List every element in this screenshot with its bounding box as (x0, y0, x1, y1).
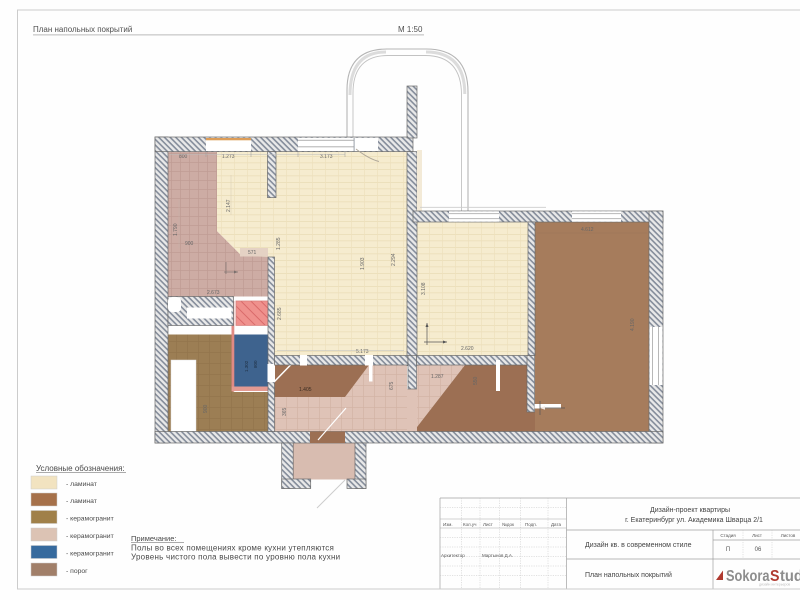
svg-text:дизайн интерьеров: дизайн интерьеров (759, 583, 790, 587)
svg-text:365: 365 (282, 407, 288, 416)
svg-text:Уровень чистого пола вывести п: Уровень чистого пола вывести по уровню п… (131, 553, 340, 562)
svg-text:2.620: 2.620 (461, 346, 474, 352)
svg-text:5.173: 5.173 (356, 349, 369, 355)
svg-text:Изм.: Изм. (443, 522, 453, 527)
svg-text:Дата: Дата (551, 522, 561, 527)
svg-text:675: 675 (389, 381, 395, 390)
svg-text:550: 550 (473, 376, 479, 385)
svg-text:1.287: 1.287 (431, 374, 444, 380)
svg-text:3.173: 3.173 (320, 154, 333, 160)
svg-text:1.405: 1.405 (299, 387, 312, 393)
svg-text:- керамогранит: - керамогранит (66, 533, 114, 540)
svg-text:571: 571 (248, 250, 257, 256)
svg-text:М 1:50: М 1:50 (398, 25, 423, 34)
svg-text:Дизайн-проект квартиры: Дизайн-проект квартиры (650, 506, 730, 514)
svg-text:План напольных покрытий: План напольных покрытий (585, 571, 672, 579)
svg-text:900: 900 (203, 404, 209, 413)
svg-text:2.673: 2.673 (207, 290, 220, 296)
svg-text:Лист: Лист (752, 533, 762, 538)
svg-text:4.612: 4.612 (581, 227, 594, 233)
svg-text:1.302: 1.302 (244, 360, 249, 372)
svg-text:Полы во всех помещениях кроме: Полы во всех помещениях кроме кухни утеп… (131, 544, 334, 553)
svg-text:П: П (726, 547, 730, 553)
svg-text:2.294: 2.294 (391, 253, 397, 266)
svg-text:800: 800 (253, 360, 258, 368)
svg-text:Стадия: Стадия (720, 533, 736, 538)
svg-text:Кол.уч: Кол.уч (463, 522, 477, 527)
svg-text:900: 900 (185, 241, 194, 247)
svg-text:Архитектор: Архитектор (441, 553, 465, 558)
svg-text:1.790: 1.790 (173, 223, 179, 236)
svg-text:- керамогранит: - керамогранит (66, 551, 114, 558)
svg-text:Условные обозначения:: Условные обозначения: (36, 464, 125, 473)
svg-text:- ламинат: - ламинат (66, 481, 97, 488)
svg-text:06: 06 (755, 547, 762, 553)
svg-text:2.685: 2.685 (277, 307, 283, 320)
svg-text:1.285: 1.285 (276, 237, 282, 250)
svg-text:№док: №док (502, 522, 514, 527)
svg-text:Примечание:: Примечание: (131, 534, 177, 543)
svg-text:3.108: 3.108 (421, 282, 427, 295)
svg-text:Дизайн кв. в современном стиле: Дизайн кв. в современном стиле (585, 541, 692, 549)
svg-text:Листов: Листов (781, 533, 796, 538)
svg-text:800: 800 (179, 154, 188, 160)
svg-text:г. Екатеринбург ул. Академика: г. Екатеринбург ул. Академика Шварца 2/1 (625, 516, 763, 524)
svg-text:- порог: - порог (66, 568, 88, 575)
svg-text:Подп.: Подп. (525, 522, 537, 527)
svg-text:1.273: 1.273 (222, 154, 235, 160)
svg-text:- керамогранит: - керамогранит (66, 516, 114, 523)
svg-text:Мартынов Д.А.: Мартынов Д.А. (482, 553, 513, 558)
svg-text:1.903: 1.903 (360, 257, 366, 270)
svg-text:План напольных покрытий: План напольных покрытий (33, 25, 132, 34)
svg-text:4.190: 4.190 (630, 318, 636, 331)
svg-text:Лист: Лист (483, 522, 493, 527)
svg-text:- ламинат: - ламинат (66, 498, 97, 505)
